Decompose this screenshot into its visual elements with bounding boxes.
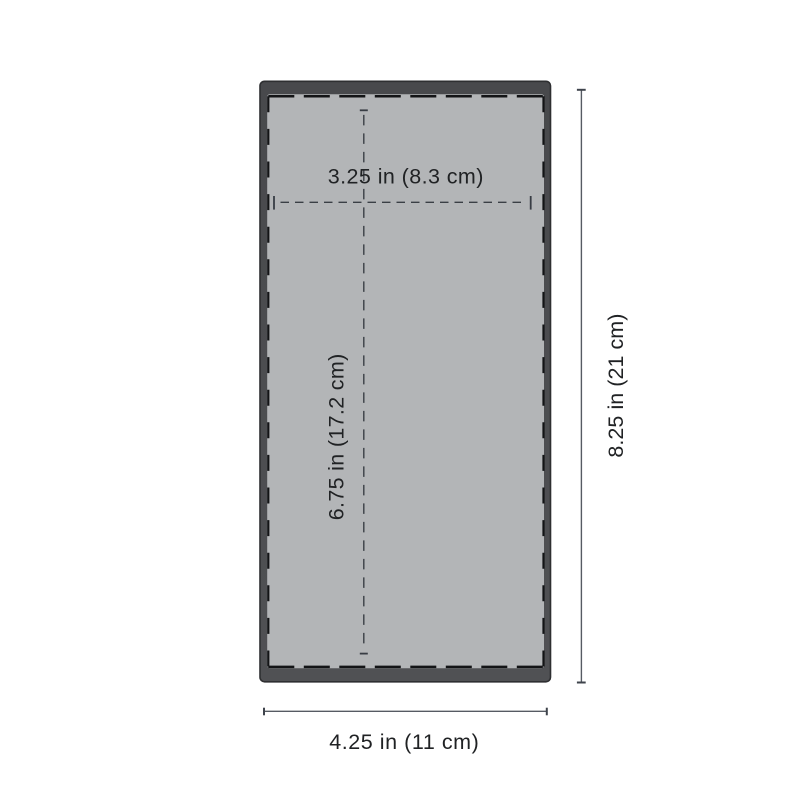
svg-text:6.75 in (17.2 cm): 6.75 in (17.2 cm) — [325, 354, 349, 521]
svg-text:3.25 in (8.3 cm): 3.25 in (8.3 cm) — [328, 164, 484, 188]
svg-text:4.25 in (11 cm): 4.25 in (11 cm) — [329, 730, 479, 754]
svg-text:8.25 in (21 cm): 8.25 in (21 cm) — [604, 314, 628, 458]
